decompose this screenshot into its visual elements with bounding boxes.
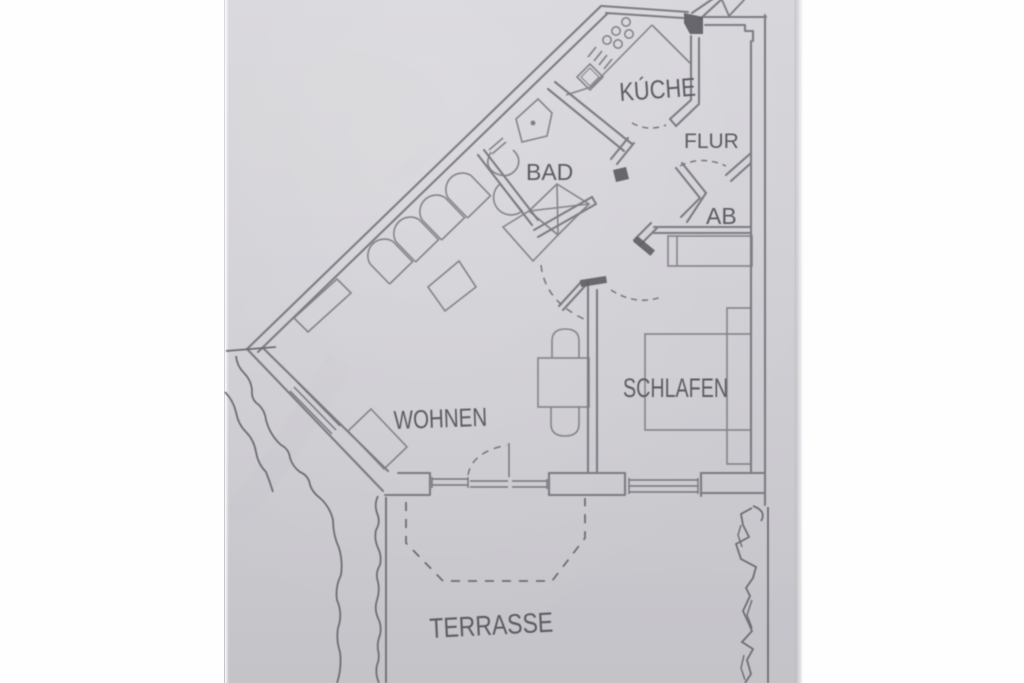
svg-text:KÚCHE: KÚCHE (618, 73, 696, 107)
svg-text:AB: AB (706, 203, 737, 229)
svg-text:BAD: BAD (526, 159, 573, 185)
svg-text:WOHNEN: WOHNEN (393, 402, 487, 434)
svg-text:TERRASSE: TERRASSE (429, 607, 554, 644)
svg-text:SCHLAFEN: SCHLAFEN (623, 374, 728, 404)
svg-text:FLUR: FLUR (684, 130, 739, 153)
